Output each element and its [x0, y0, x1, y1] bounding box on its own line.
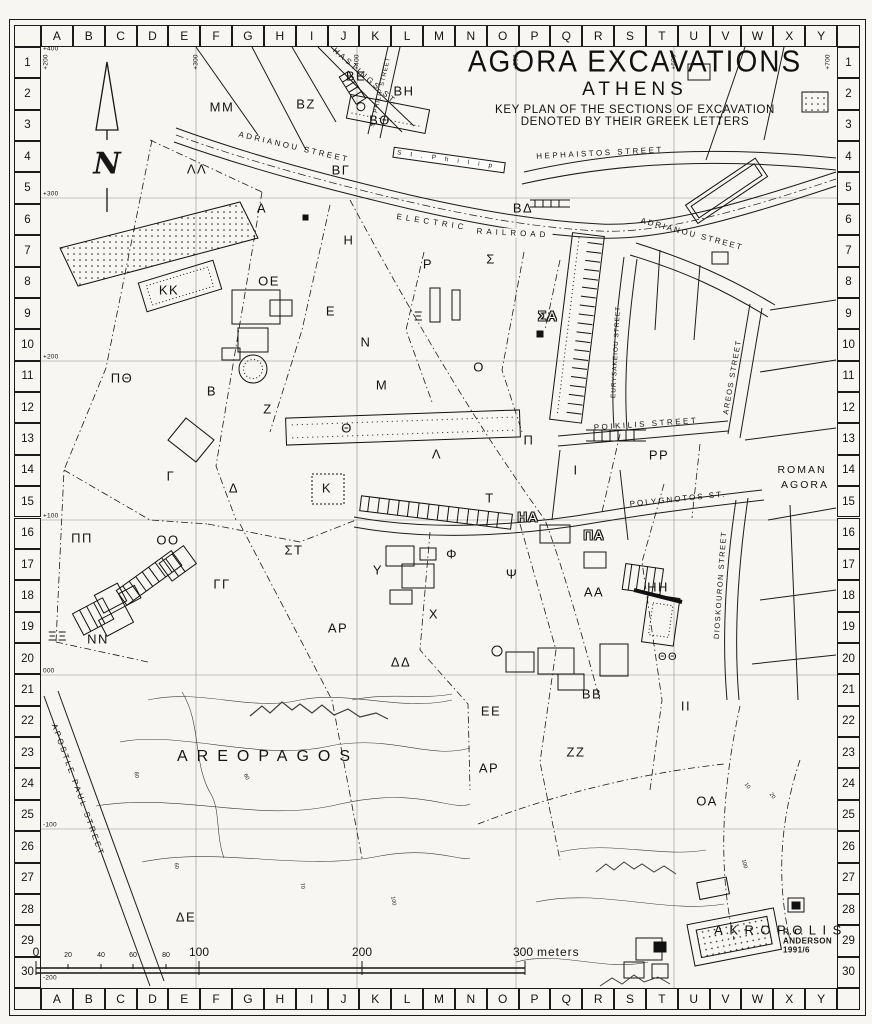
- grid-number-left: 22: [14, 706, 41, 737]
- grid-corner: [14, 25, 41, 47]
- section-label: ΖΖ: [567, 745, 586, 760]
- grid-number-right: 24: [837, 768, 860, 799]
- grid-letter-bottom: D: [137, 988, 169, 1010]
- grid-number-left: 7: [14, 235, 41, 266]
- section-label: Θ: [341, 421, 353, 436]
- grid-number-right: 6: [837, 204, 860, 235]
- contour-elevation-label: 70: [298, 882, 305, 889]
- section-label: ΛΛ: [187, 162, 207, 177]
- contour-elevation-label: 20: [768, 792, 776, 800]
- grid-letter-top: Y: [805, 25, 837, 47]
- section-label: Ρ: [423, 257, 433, 272]
- grid-number-right: 17: [837, 549, 860, 580]
- street-label: RAILROAD: [473, 226, 552, 239]
- section-label: ΣΤ: [285, 543, 304, 558]
- grid-letter-bottom: Q: [550, 988, 582, 1010]
- grid-letter-bottom: L: [391, 988, 423, 1010]
- grid-number-right: 14: [837, 455, 860, 486]
- section-label: Τ: [485, 491, 494, 506]
- contour-elevation-label: 80: [133, 771, 140, 778]
- section-label: Σ: [486, 252, 496, 267]
- grid-letter-top: N: [455, 25, 487, 47]
- grid-number-left: 24: [14, 768, 41, 799]
- street-label: POIKILIS STREET: [593, 416, 698, 432]
- section-label: ΑΡ: [479, 761, 499, 776]
- coordinate-label-left: +100: [43, 512, 58, 519]
- section-label: Γ: [167, 469, 176, 484]
- grid-number-right: 5: [837, 172, 860, 203]
- street-label: HEPHAISTOS STREET: [536, 145, 664, 161]
- grid-letter-bottom: M: [423, 988, 455, 1010]
- grid-number-left: 23: [14, 737, 41, 768]
- grid-number-left: 27: [14, 863, 41, 894]
- grid-letter-top: O: [487, 25, 519, 47]
- area-label: AKROPOLIS: [714, 923, 848, 938]
- section-label: ΟΑ: [696, 794, 718, 809]
- grid-letter-top: X: [773, 25, 805, 47]
- grid-letter-top: C: [105, 25, 137, 47]
- section-label: ΠΘ: [111, 371, 134, 386]
- grid-number-right: 7: [837, 235, 860, 266]
- grid-number-left: 11: [14, 361, 41, 392]
- section-label: ΜΜ: [210, 100, 235, 115]
- street-label: ELECTRIC: [393, 211, 471, 232]
- grid-number-left: 2: [14, 78, 41, 109]
- section-label: ΝΝ: [87, 632, 109, 647]
- section-label: Ζ: [263, 402, 272, 417]
- street-label: EURYSAKEIOU STREET: [610, 306, 622, 399]
- grid-letter-top: F: [200, 25, 232, 47]
- scale-tick-label: 200: [352, 945, 372, 959]
- grid-letter-bottom: X: [773, 988, 805, 1010]
- grid-number-left: 13: [14, 423, 41, 454]
- section-label: Η: [344, 233, 355, 248]
- grid-number-left: 9: [14, 298, 41, 329]
- grid-number-right: 1: [837, 47, 860, 78]
- grid-number-left: 30: [14, 957, 41, 988]
- grid-letter-top: L: [391, 25, 423, 47]
- grid-number-left: 5: [14, 172, 41, 203]
- grid-letter-top: K: [359, 25, 391, 47]
- area-label: ROMAN: [777, 464, 826, 476]
- grid-letter-top: A: [41, 25, 73, 47]
- street-label: DIOSKOURON STREET: [712, 531, 729, 640]
- grid-letter-bottom: W: [741, 988, 773, 1010]
- contour-elevation-label: 10: [743, 782, 751, 790]
- section-label: Ο: [473, 360, 485, 375]
- grid-number-left: 21: [14, 674, 41, 705]
- grid-letter-top: E: [168, 25, 200, 47]
- scale-tick-label: 60: [129, 952, 137, 959]
- section-label: ΒΘ: [369, 113, 391, 128]
- grid-number-left: 25: [14, 800, 41, 831]
- grid-number-left: 18: [14, 580, 41, 611]
- grid-number-right: 18: [837, 580, 860, 611]
- section-label: ΟΕ: [258, 274, 280, 289]
- grid-letter-bottom: K: [359, 988, 391, 1010]
- grid-corner: [837, 25, 860, 47]
- grid-number-left: 6: [14, 204, 41, 235]
- grid-number-right: 20: [837, 643, 860, 674]
- grid-number-right: 21: [837, 674, 860, 705]
- grid-letter-bottom: P: [519, 988, 551, 1010]
- section-label: ΗΑ: [517, 510, 538, 525]
- grid-letter-bottom: F: [200, 988, 232, 1010]
- grid-number-left: 12: [14, 392, 41, 423]
- section-label: ΠΑ: [583, 528, 604, 543]
- grid-number-right: 11: [837, 361, 860, 392]
- grid-letter-bottom: B: [73, 988, 105, 1010]
- section-label: ΑΡ: [328, 621, 348, 636]
- section-label: Υ: [373, 563, 383, 578]
- grid-letter-top: I: [296, 25, 328, 47]
- grid-number-left: 1: [14, 47, 41, 78]
- grid-letter-bottom: O: [487, 988, 519, 1010]
- scale-tick-label: 80: [162, 952, 170, 959]
- coordinate-label-left: +300: [43, 190, 58, 197]
- section-label: Φ: [446, 547, 458, 562]
- section-label: Ξ: [414, 309, 424, 324]
- section-label: Ι: [573, 463, 578, 478]
- grid-letter-top: W: [741, 25, 773, 47]
- section-label: ΚΚ: [159, 283, 179, 298]
- grid-number-right: 25: [837, 800, 860, 831]
- grid-letter-bottom: S: [614, 988, 646, 1010]
- section-label: Χ: [429, 607, 439, 622]
- section-label: ΣΑ: [538, 309, 558, 324]
- coordinate-label-top: +400: [354, 54, 361, 69]
- section-label: ΔΔ: [391, 655, 411, 670]
- grid-letter-top: H: [264, 25, 296, 47]
- section-label: Μ: [376, 378, 388, 393]
- grid-number-left: 19: [14, 612, 41, 643]
- grid-corner: [837, 988, 860, 1010]
- grid-number-left: 15: [14, 486, 41, 517]
- grid-number-right: 10: [837, 329, 860, 360]
- grid-letter-bottom: H: [264, 988, 296, 1010]
- grid-letter-top: T: [646, 25, 678, 47]
- grid-letter-bottom: A: [41, 988, 73, 1010]
- contour-elevation-label: 60: [242, 773, 250, 781]
- section-label: ΟΟ: [156, 533, 179, 548]
- contour-elevation-label: 100: [740, 859, 748, 869]
- section-label: ΒΗ: [393, 84, 414, 99]
- scale-tick-label: 100: [189, 945, 209, 959]
- grid-letter-top: U: [678, 25, 710, 47]
- grid-number-left: 10: [14, 329, 41, 360]
- section-label: Π: [524, 433, 535, 448]
- scale-tick-label: 0: [33, 945, 40, 959]
- grid-letter-bottom: U: [678, 988, 710, 1010]
- grid-number-right: 23: [837, 737, 860, 768]
- section-label: ΒΖ: [296, 97, 316, 112]
- section-label: ΠΠ: [71, 531, 93, 546]
- section-label: Β: [207, 384, 217, 399]
- grid-letter-top: G: [232, 25, 264, 47]
- grid-number-right: 28: [837, 894, 860, 925]
- area-label: St.Philip: [392, 147, 505, 174]
- section-label: ΑΑ: [584, 585, 604, 600]
- section-label: ΓΓ: [213, 577, 230, 592]
- coordinate-label-left: 000: [43, 667, 54, 674]
- section-label: Λ: [432, 447, 442, 462]
- section-label: ΒΒ: [582, 687, 602, 702]
- grid-number-right: 19: [837, 612, 860, 643]
- grid-number-right: 4: [837, 141, 860, 172]
- grid-letter-top: D: [137, 25, 169, 47]
- street-label: POLYGNOTOS ST.: [629, 489, 726, 508]
- grid-number-left: 16: [14, 518, 41, 549]
- grid-number-right: 9: [837, 298, 860, 329]
- scale-unit-label: meters: [537, 945, 580, 959]
- grid-letter-bottom: J: [328, 988, 360, 1010]
- grid-letter-bottom: V: [710, 988, 742, 1010]
- section-label: ΘΘ: [658, 651, 678, 663]
- grid-number-right: 15: [837, 486, 860, 517]
- grid-letter-top: S: [614, 25, 646, 47]
- coordinate-label-top: +600: [671, 54, 678, 69]
- grid-number-right: 30: [837, 957, 860, 988]
- section-label: ΕΕ: [481, 704, 501, 719]
- grid-corner: [14, 988, 41, 1010]
- section-label: Ψ: [506, 567, 518, 582]
- grid-letter-top: P: [519, 25, 551, 47]
- contour-elevation-label: 100: [389, 896, 397, 906]
- grid-number-left: 3: [14, 110, 41, 141]
- grid-number-left: 28: [14, 894, 41, 925]
- coordinate-label-top: +300: [193, 54, 200, 69]
- section-label: Κ: [322, 481, 332, 496]
- grid-letter-bottom: C: [105, 988, 137, 1010]
- grid-number-left: 17: [14, 549, 41, 580]
- grid-number-right: 26: [837, 831, 860, 862]
- label-layer: AABBCCDDEEFFGGHHIIJJKKLLMMNNOOPPQQRRSSTT…: [0, 0, 872, 1024]
- section-label: ΒΓ: [332, 163, 351, 178]
- grid-letter-bottom: Y: [805, 988, 837, 1010]
- grid-letter-bottom: T: [646, 988, 678, 1010]
- grid-letter-bottom: E: [168, 988, 200, 1010]
- section-label: Ν: [361, 335, 372, 350]
- grid-number-left: 14: [14, 455, 41, 486]
- section-label: ΗΗ: [647, 580, 669, 595]
- grid-number-right: 3: [837, 110, 860, 141]
- coordinate-label-top: +500: [513, 54, 520, 69]
- grid-number-left: 26: [14, 831, 41, 862]
- grid-number-left: 8: [14, 267, 41, 298]
- grid-letter-bottom: R: [582, 988, 614, 1010]
- grid-number-right: 27: [837, 863, 860, 894]
- grid-letter-top: J: [328, 25, 360, 47]
- grid-number-right: 13: [837, 423, 860, 454]
- coordinate-label-left: -200: [43, 974, 57, 981]
- grid-letter-top: V: [710, 25, 742, 47]
- street-label: AREOS STREET: [721, 339, 743, 415]
- grid-letter-bottom: I: [296, 988, 328, 1010]
- section-label: ΙΙ: [681, 699, 691, 714]
- section-label: ΞΞ: [48, 629, 68, 644]
- grid-number-right: 8: [837, 267, 860, 298]
- grid-number-right: 22: [837, 706, 860, 737]
- coordinate-label-top: +200: [43, 54, 50, 69]
- contour-elevation-label: 60: [173, 862, 180, 869]
- section-label: ΒΔ: [513, 201, 533, 216]
- grid-letter-top: Q: [550, 25, 582, 47]
- street-label: ADRIANOU STREET: [238, 130, 351, 164]
- coordinate-label-left: +200: [43, 353, 58, 360]
- section-label: ΔΕ: [176, 910, 196, 925]
- grid-number-right: 16: [837, 518, 860, 549]
- coordinate-label-left: -100: [43, 821, 57, 828]
- area-label: AGORA: [781, 479, 829, 491]
- section-label: ΡΡ: [649, 448, 669, 463]
- grid-number-right: 12: [837, 392, 860, 423]
- street-label: APOSTLE PAUL STREET: [50, 722, 106, 857]
- section-label: Δ: [229, 481, 239, 496]
- section-label: Α: [257, 201, 267, 216]
- street-label: ADRIANOU STREET: [640, 216, 745, 252]
- grid-number-right: 2: [837, 78, 860, 109]
- grid-letter-top: B: [73, 25, 105, 47]
- coordinate-label-left: +400: [43, 45, 58, 52]
- area-label: AREOPAGOS: [177, 748, 359, 766]
- agora-key-plan-map: N AGORA EXCAVATIONS ATHENS KEY PLAN OF T…: [0, 0, 872, 1024]
- scale-tick-label: 40: [97, 952, 105, 959]
- scale-tick-label: 300: [513, 945, 533, 959]
- grid-letter-top: M: [423, 25, 455, 47]
- section-label: ΒΕ: [346, 69, 366, 84]
- grid-number-left: 4: [14, 141, 41, 172]
- grid-letter-top: R: [582, 25, 614, 47]
- grid-letter-bottom: G: [232, 988, 264, 1010]
- scale-tick-label: 20: [64, 952, 72, 959]
- grid-letter-bottom: N: [455, 988, 487, 1010]
- section-label: Ε: [326, 304, 336, 319]
- coordinate-label-top: +700: [825, 54, 832, 69]
- grid-number-left: 20: [14, 643, 41, 674]
